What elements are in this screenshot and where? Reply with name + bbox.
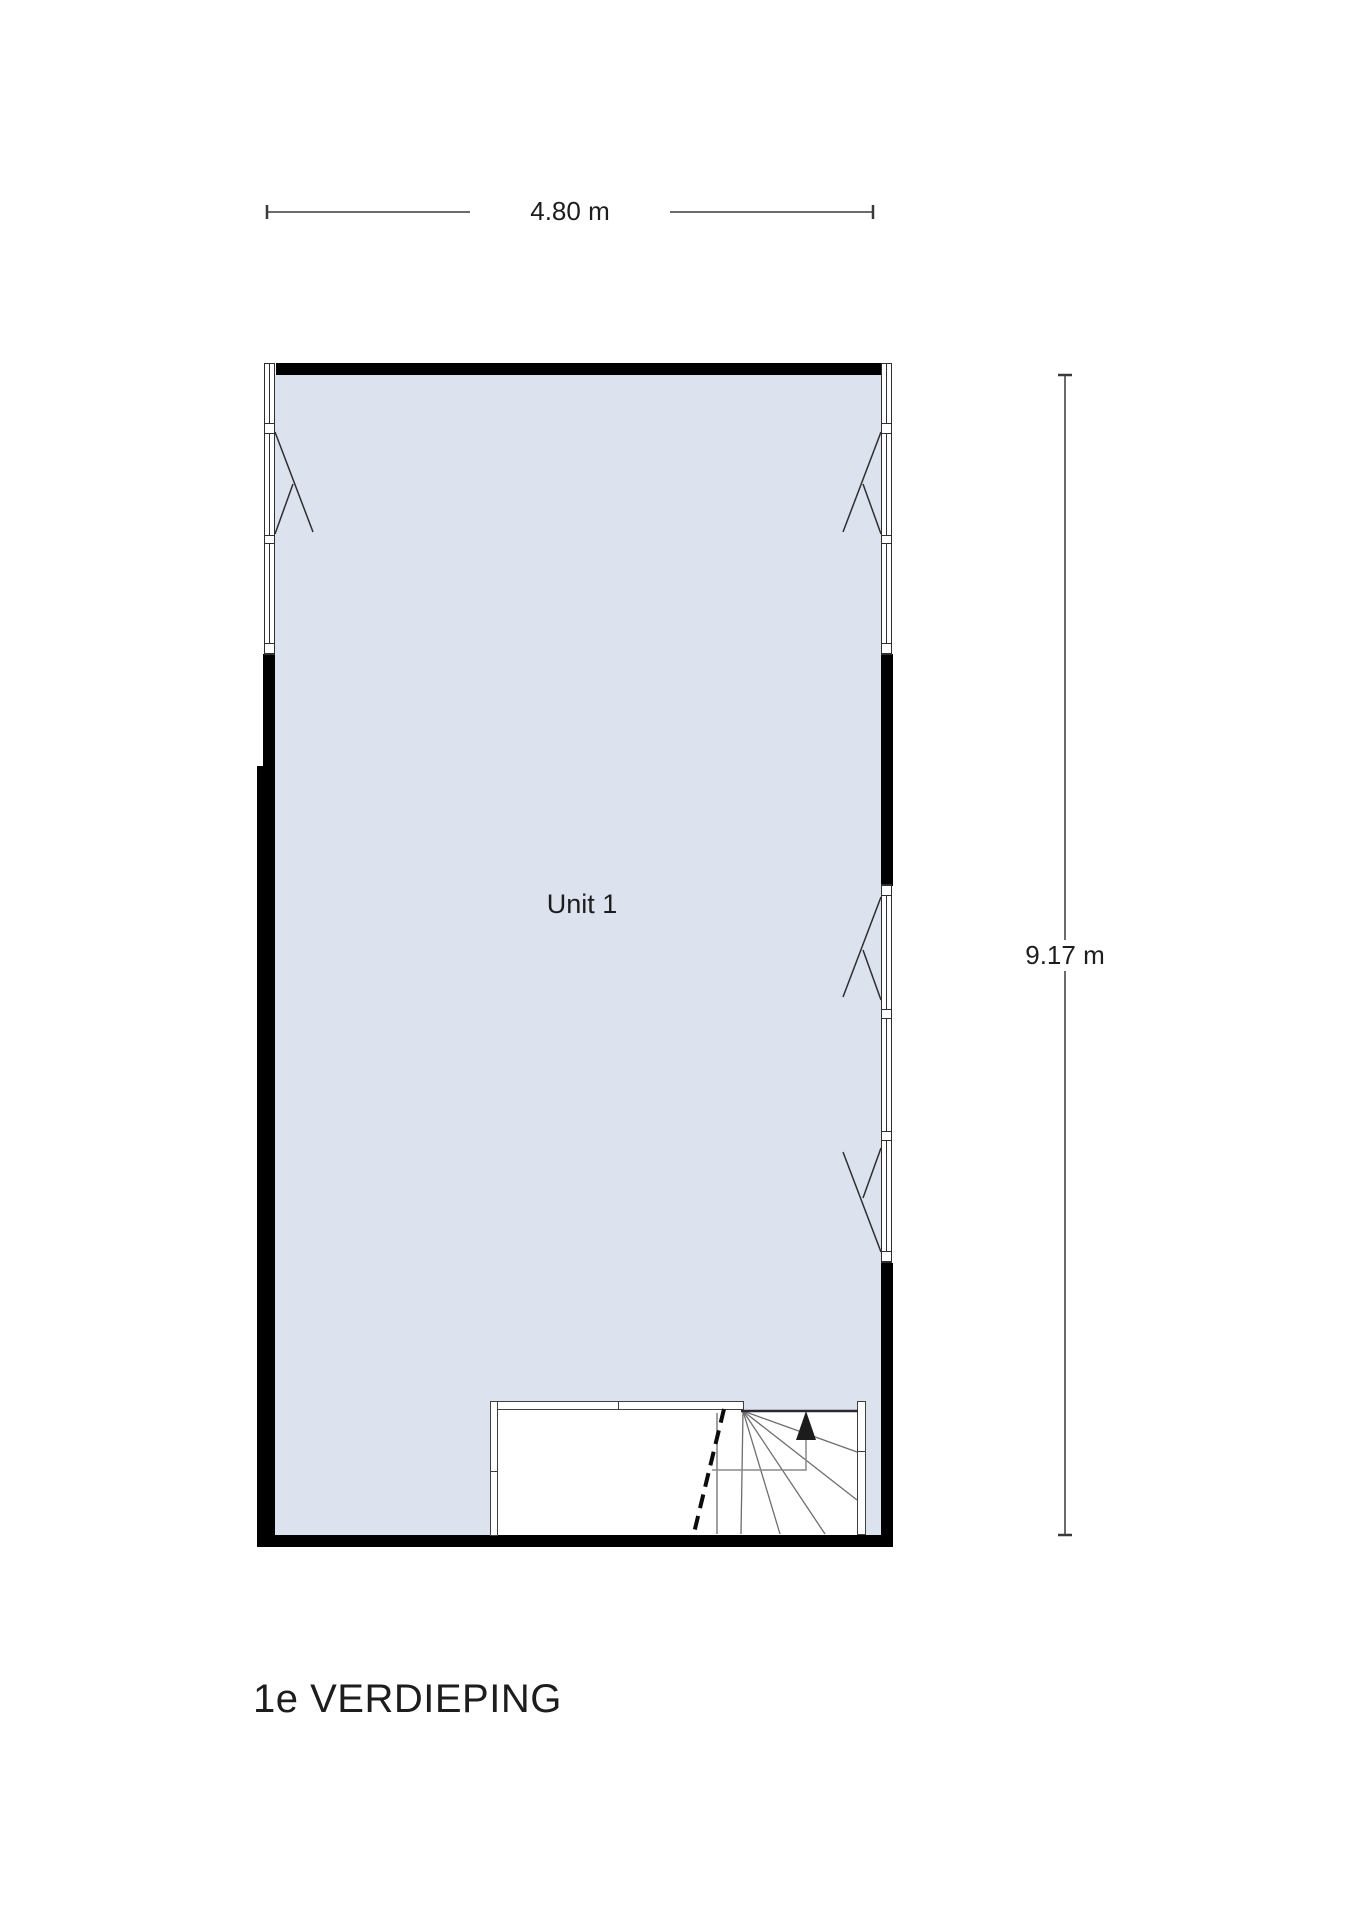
window-mullion	[881, 1131, 892, 1141]
window-right-wall-top	[881, 363, 892, 655]
railing-post	[858, 1451, 865, 1452]
window-mullion	[264, 535, 275, 544]
wall-right-upper	[881, 654, 893, 886]
window-sill	[881, 885, 892, 896]
window-right-wall-lower	[881, 884, 892, 1263]
floorplan-page: Unit 1 4.80 m 9.17 m 1e VERDIEPING	[0, 0, 1358, 1920]
window-sill	[264, 643, 275, 654]
stairwell-opening	[498, 1410, 857, 1535]
wall-bottom	[257, 1535, 893, 1547]
window-sill	[881, 643, 892, 654]
wall-left-upper	[263, 654, 275, 766]
window-mullion	[881, 1009, 892, 1019]
wall-right-lower	[881, 1263, 893, 1547]
stair-railing-left	[490, 1401, 498, 1536]
stair-railing-right	[857, 1401, 866, 1535]
railing-post	[618, 1402, 619, 1409]
room-label: Unit 1	[482, 889, 682, 920]
window-left-wall	[264, 363, 275, 655]
dimension-height-label: 9.17 m	[965, 940, 1165, 971]
dimension-width-label: 4.80 m	[470, 196, 670, 227]
railing-post	[491, 1471, 497, 1472]
window-sill	[881, 1251, 892, 1262]
room-floor	[275, 375, 881, 1535]
wall-left-lower	[257, 766, 275, 1547]
window-mullion	[881, 423, 892, 434]
window-glass-line	[886, 364, 887, 654]
floor-title: 1e VERDIEPING	[253, 1677, 562, 1722]
wall-top	[276, 363, 881, 375]
window-glass-line	[269, 364, 270, 654]
window-mullion	[881, 535, 892, 544]
window-glass-line	[886, 885, 887, 1262]
stair-railing-top	[490, 1401, 744, 1410]
window-mullion	[264, 423, 275, 434]
